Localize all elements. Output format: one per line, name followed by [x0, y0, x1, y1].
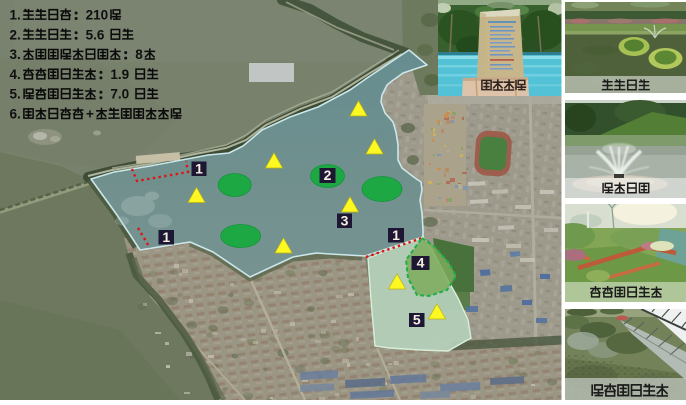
svg-text:1.: 1. — [10, 8, 21, 23]
svg-text:5: 5 — [413, 312, 421, 328]
svg-text:6.: 6. — [10, 107, 21, 122]
svg-text:2: 2 — [324, 167, 332, 183]
svg-text:4.: 4. — [10, 67, 21, 82]
svg-text:3.: 3. — [10, 47, 21, 62]
svg-text:+: + — [86, 107, 94, 122]
svg-text:1: 1 — [392, 227, 400, 243]
svg-text:8: 8 — [135, 47, 143, 62]
svg-text:2.: 2. — [10, 27, 21, 42]
svg-text:4: 4 — [417, 255, 425, 271]
svg-text:5.: 5. — [10, 87, 21, 102]
svg-text:1: 1 — [195, 160, 203, 176]
svg-text:1.9: 1.9 — [110, 67, 129, 82]
svg-text:210: 210 — [86, 8, 109, 23]
svg-text:3: 3 — [341, 212, 349, 228]
svg-text:1: 1 — [162, 229, 170, 245]
svg-text:5.6: 5.6 — [86, 27, 105, 42]
svg-text:7.0: 7.0 — [110, 87, 129, 102]
